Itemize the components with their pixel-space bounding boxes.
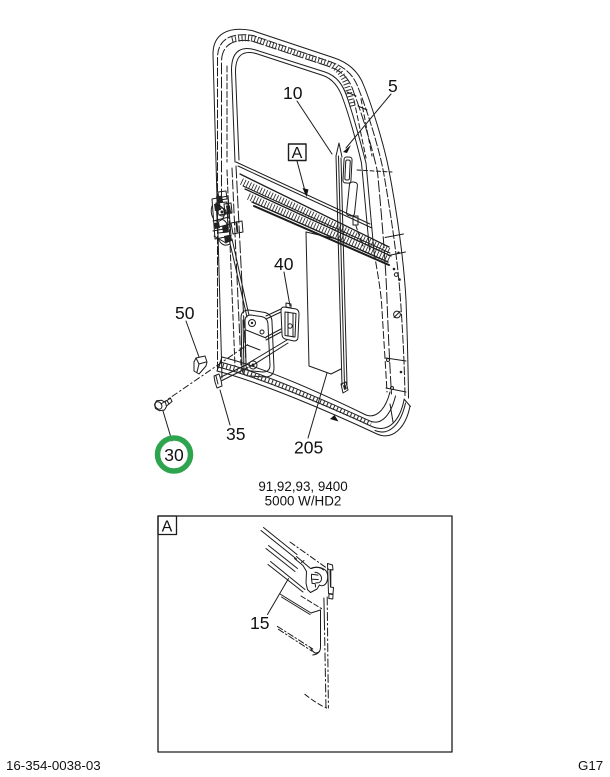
svg-text:A: A xyxy=(292,145,303,162)
svg-text:40: 40 xyxy=(274,254,294,274)
svg-text:A: A xyxy=(162,519,173,536)
svg-text:50: 50 xyxy=(175,303,195,323)
svg-text:35: 35 xyxy=(226,424,245,444)
svg-text:5: 5 xyxy=(388,76,398,96)
svg-text:91,92,93, 9400: 91,92,93, 9400 xyxy=(258,479,347,494)
svg-text:30: 30 xyxy=(164,445,184,465)
svg-text:15: 15 xyxy=(250,613,269,633)
svg-text:205: 205 xyxy=(294,438,323,458)
svg-text:16-354-0038-03: 16-354-0038-03 xyxy=(6,758,101,773)
svg-text:10: 10 xyxy=(283,83,303,103)
svg-text:5000 W/HD2: 5000 W/HD2 xyxy=(265,494,342,509)
svg-text:G17: G17 xyxy=(578,758,603,773)
